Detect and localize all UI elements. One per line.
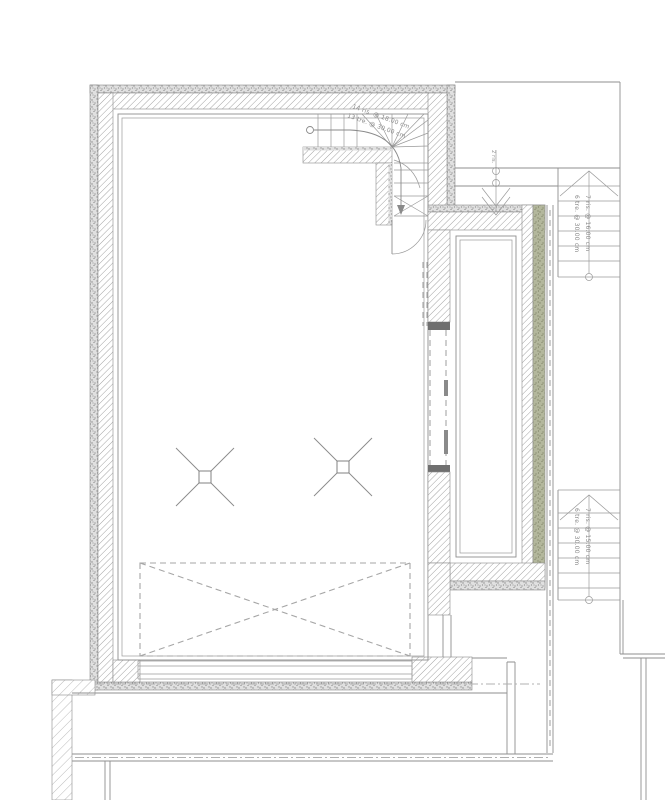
lower-flight-riser-label: 7 ris. @ 15.00 cm	[584, 508, 591, 564]
void-opening-marker	[140, 563, 410, 656]
insulation-band	[533, 205, 545, 588]
upper-flight-riser-label: 7 ris. @ 16.00 cm	[584, 195, 591, 251]
shaft-opening	[430, 330, 446, 465]
winder-staircase	[303, 114, 428, 326]
door-jamb	[428, 465, 450, 472]
ceiling-fixture-symbol	[314, 438, 372, 496]
floor-plan-drawing: 14 ris. @ 18.00 cm 13 tre. @ 30.00 cm 7 …	[0, 0, 665, 800]
window-band	[138, 661, 412, 679]
terrace	[52, 680, 553, 800]
stair-door	[392, 220, 426, 254]
corridor	[455, 82, 665, 800]
elevator-shaft	[428, 205, 545, 657]
upper-flight-tread-label: 6 tre. @ 30.00 cm	[573, 195, 580, 252]
door-swing-arc	[392, 220, 426, 254]
shaft-inner-face	[456, 236, 516, 557]
entry-step-label: 2 ris.	[490, 150, 496, 164]
door-jamb	[428, 322, 450, 330]
ceiling-fixture-symbol	[176, 448, 234, 506]
floor-plan: 14 ris. @ 18.00 cm 13 tre. @ 30.00 cm 7 …	[0, 0, 665, 800]
lower-window	[105, 761, 110, 800]
lower-opening	[443, 615, 451, 657]
lower-flight-tread-label: 6 tre. @ 30.00 cm	[573, 508, 580, 565]
